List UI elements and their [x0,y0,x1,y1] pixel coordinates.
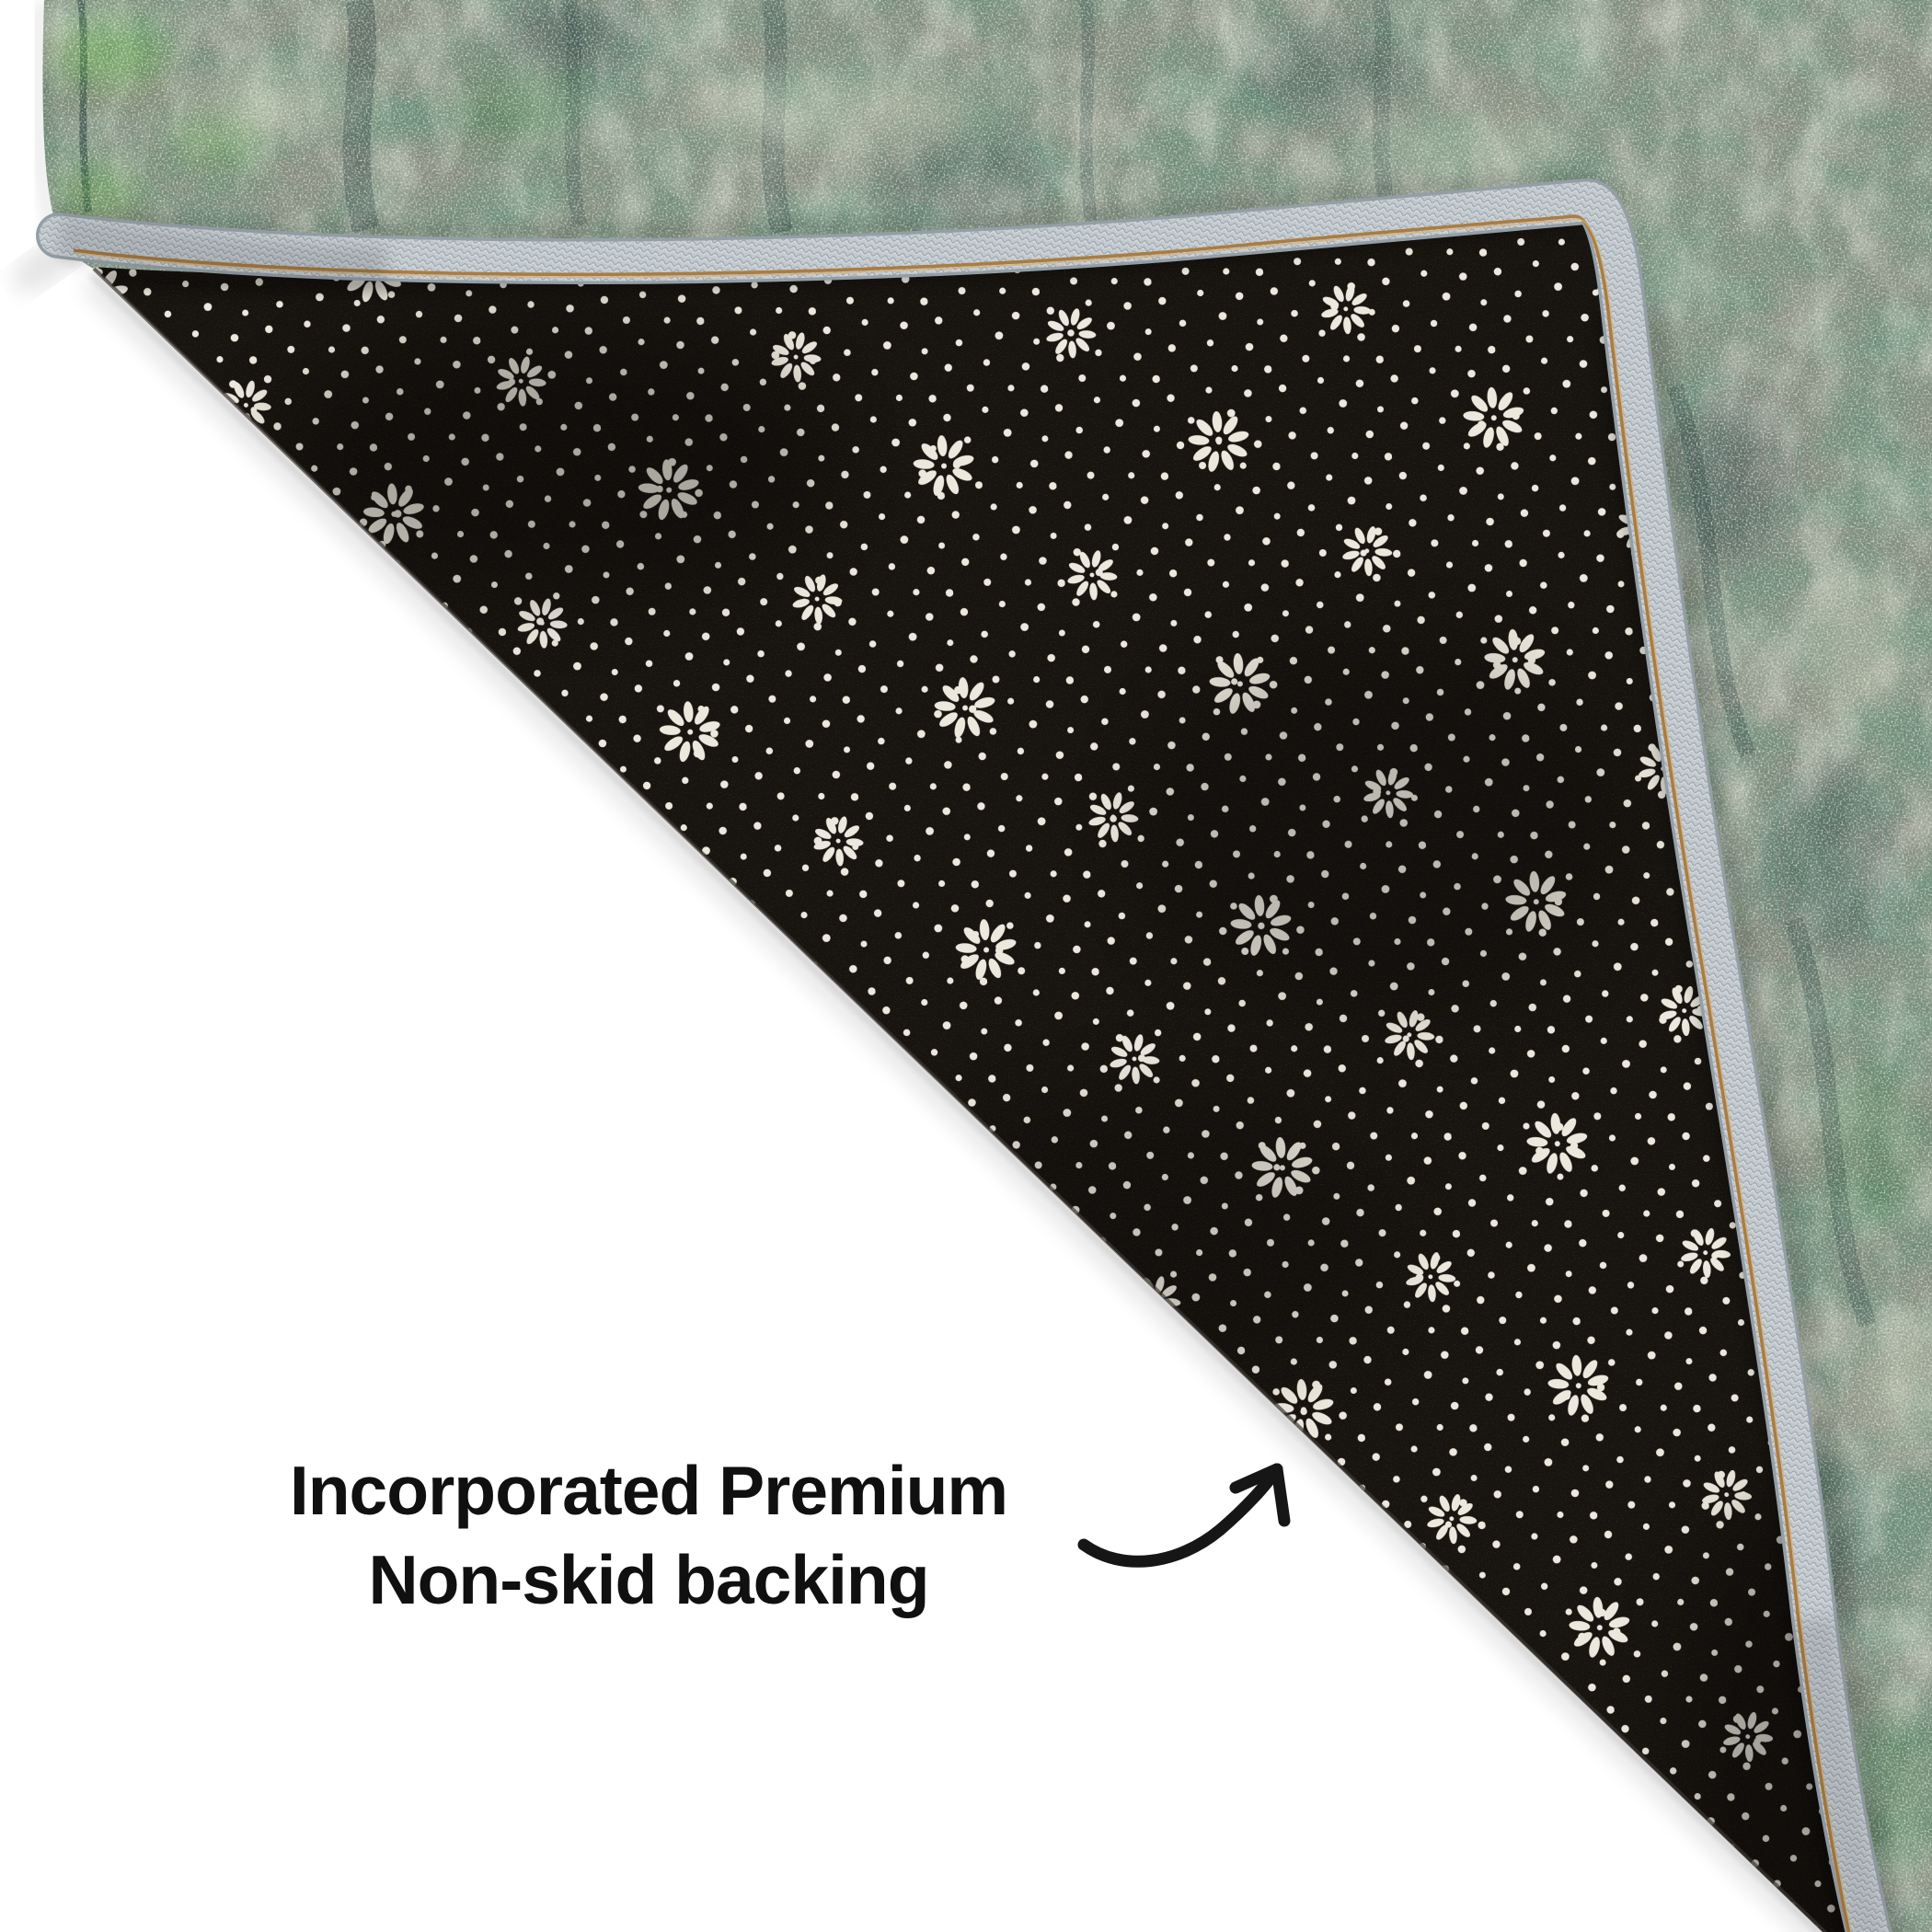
rug-photo [0,0,1932,1932]
caption: Incorporated Premium Non-skid backing [184,1446,1113,1625]
caption-line-1: Incorporated Premium [184,1446,1113,1535]
caption-line-2: Non-skid backing [184,1535,1113,1625]
arrow-icon [1049,1440,1316,1587]
product-image: Incorporated Premium Non-skid backing [0,0,1932,1932]
